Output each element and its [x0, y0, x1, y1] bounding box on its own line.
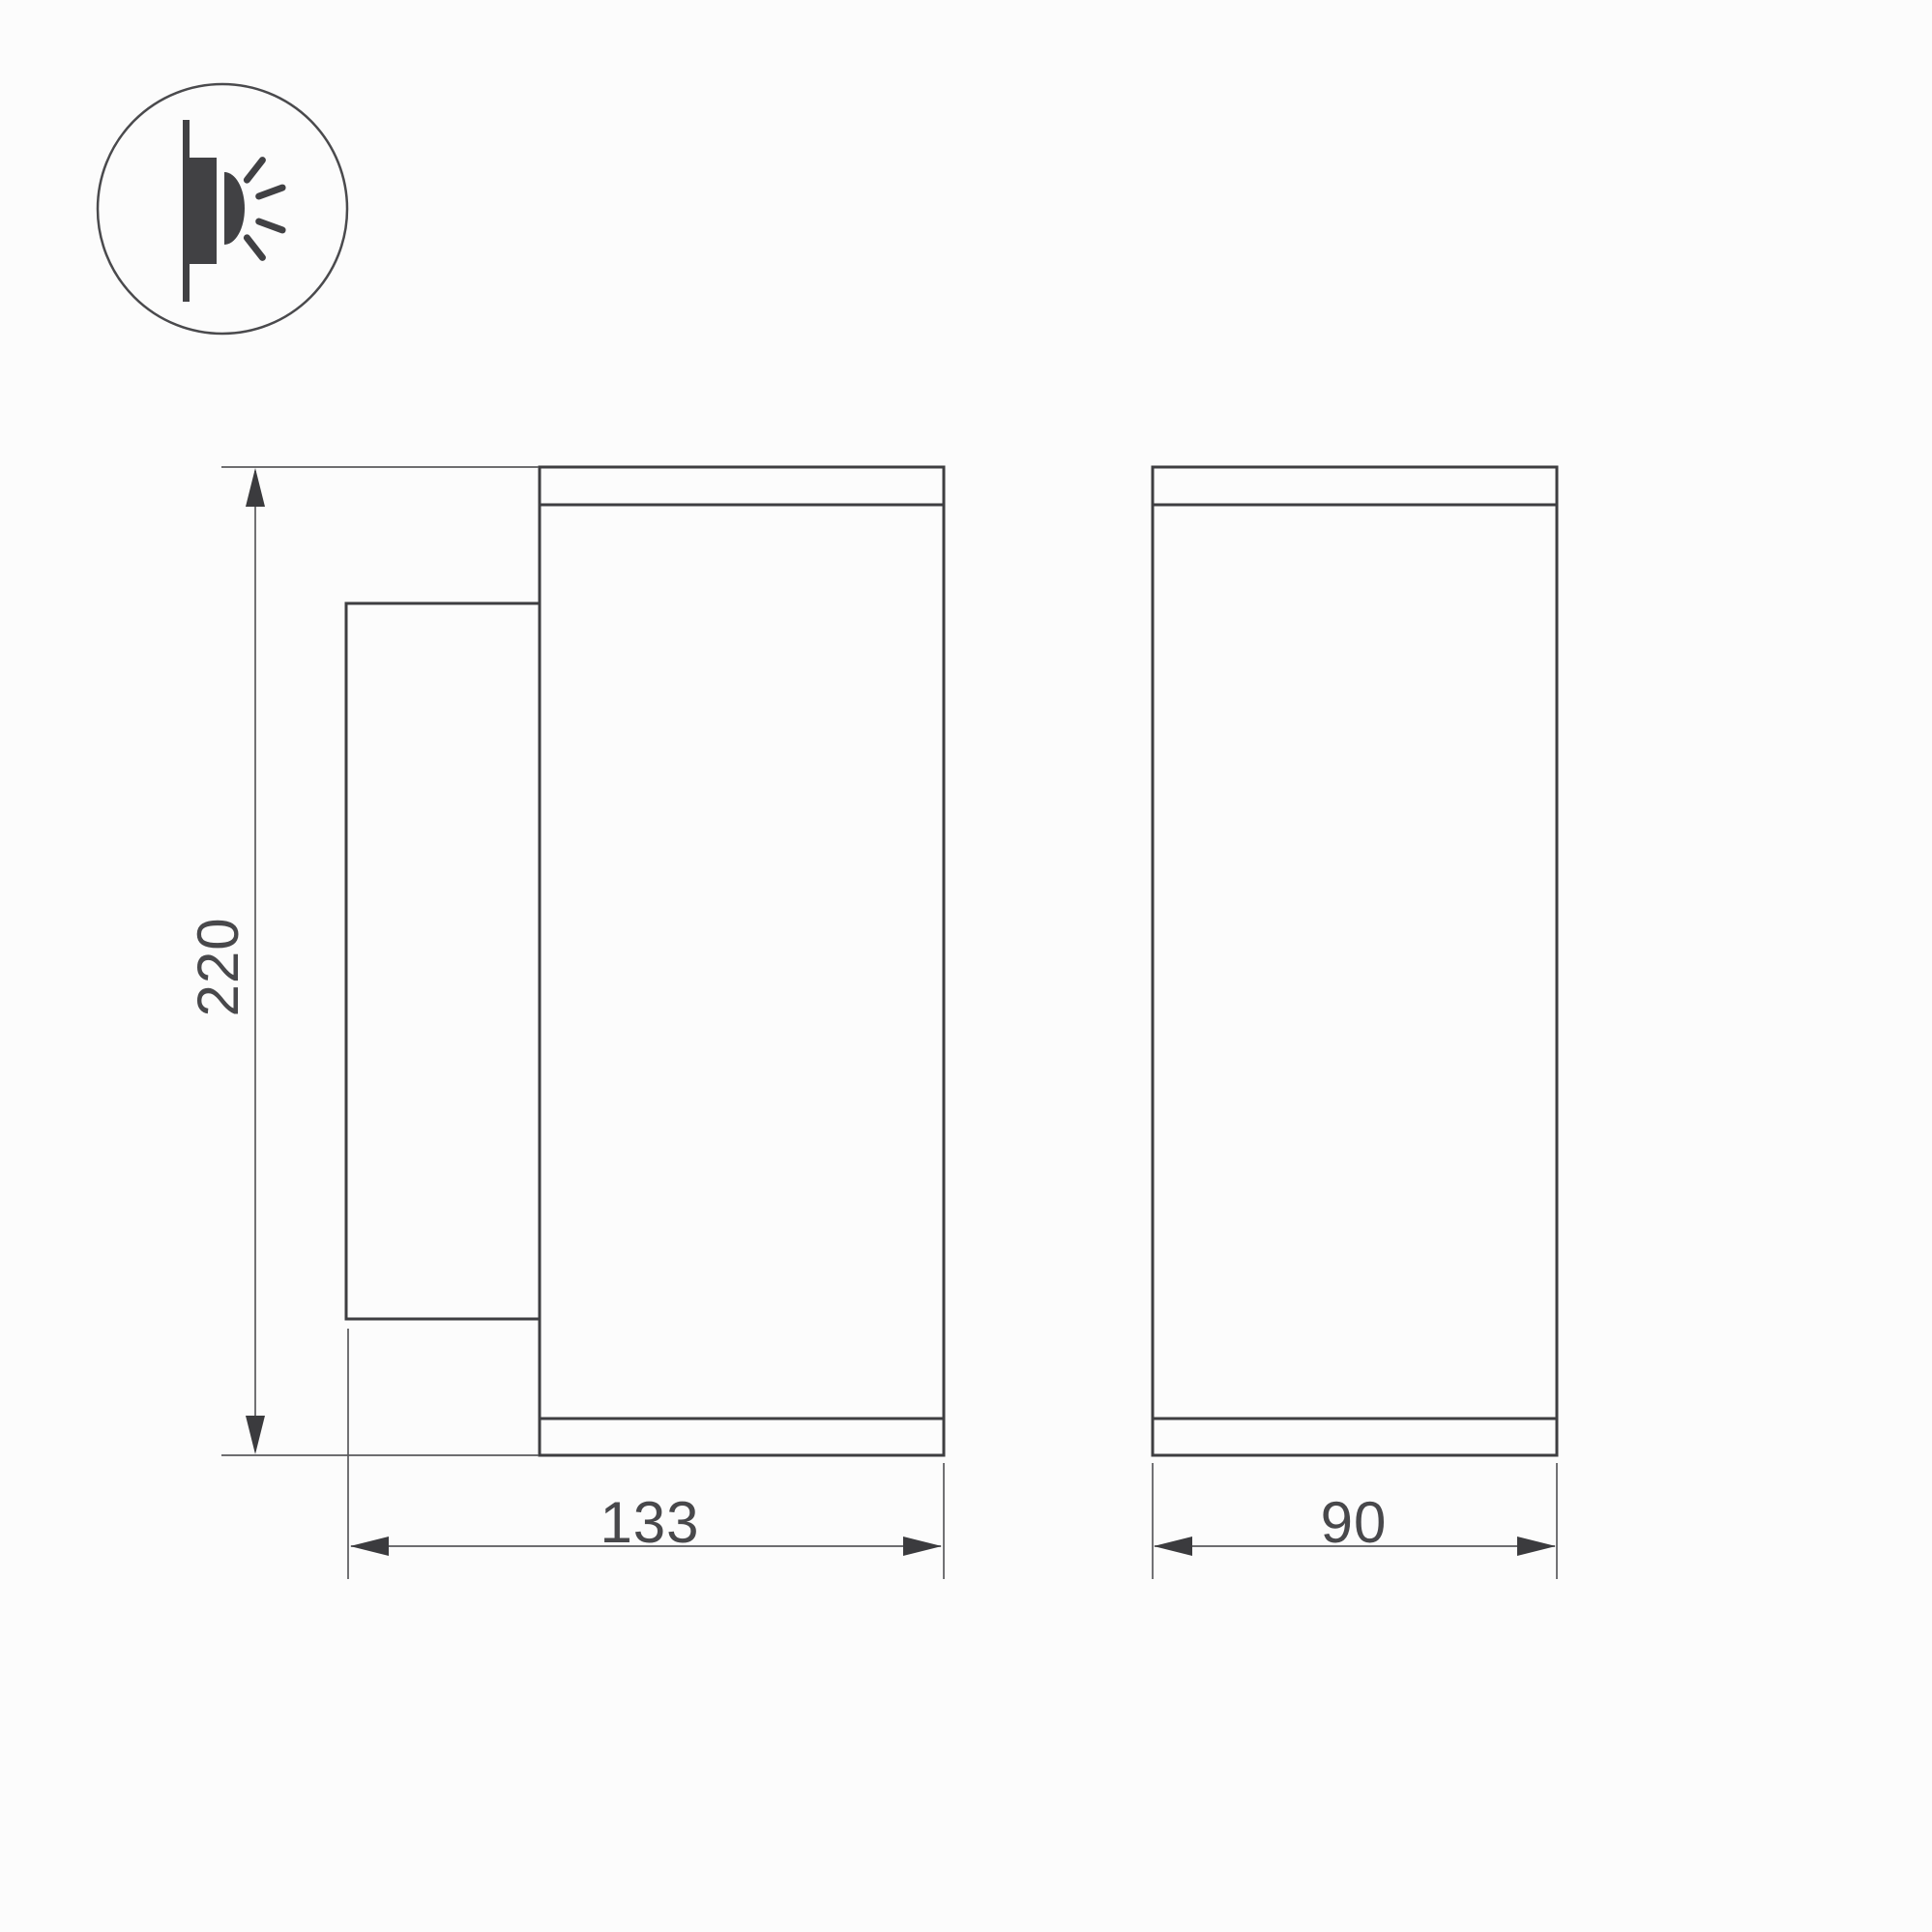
side-view [346, 467, 944, 1455]
height-dimension-label: 220 [186, 917, 250, 1016]
arrow-left-icon [1154, 1537, 1192, 1556]
arrow-right-icon [903, 1537, 942, 1556]
icon-circle [98, 84, 347, 334]
icon-light-ray-icon [259, 188, 282, 196]
icon-lens [224, 172, 245, 245]
front-view [1153, 467, 1557, 1455]
front-width-dimension-label: 90 [1321, 1490, 1388, 1555]
arrow-up-icon [246, 468, 265, 507]
front-view-body [1153, 467, 1557, 1455]
arrow-right-icon [1517, 1537, 1556, 1556]
side-view-wall-bracket [346, 603, 540, 1319]
icon-light-ray-icon [247, 238, 262, 258]
side-view-body [540, 467, 944, 1455]
arrow-left-icon [350, 1537, 389, 1556]
icon-light-ray-icon [247, 161, 262, 181]
wall-light-icon [98, 84, 347, 334]
dimension-drawing-canvas: 220 133 90 [0, 0, 1932, 1932]
technical-drawing-svg: 220 133 90 [0, 0, 1932, 1932]
arrow-down-icon [246, 1416, 265, 1454]
front-width-dimension: 90 [1153, 1463, 1557, 1579]
icon-light-ray-icon [259, 221, 282, 230]
icon-lamp-body [190, 158, 217, 264]
side-width-dimension-label: 133 [600, 1490, 699, 1555]
height-dimension: 220 [186, 467, 539, 1455]
